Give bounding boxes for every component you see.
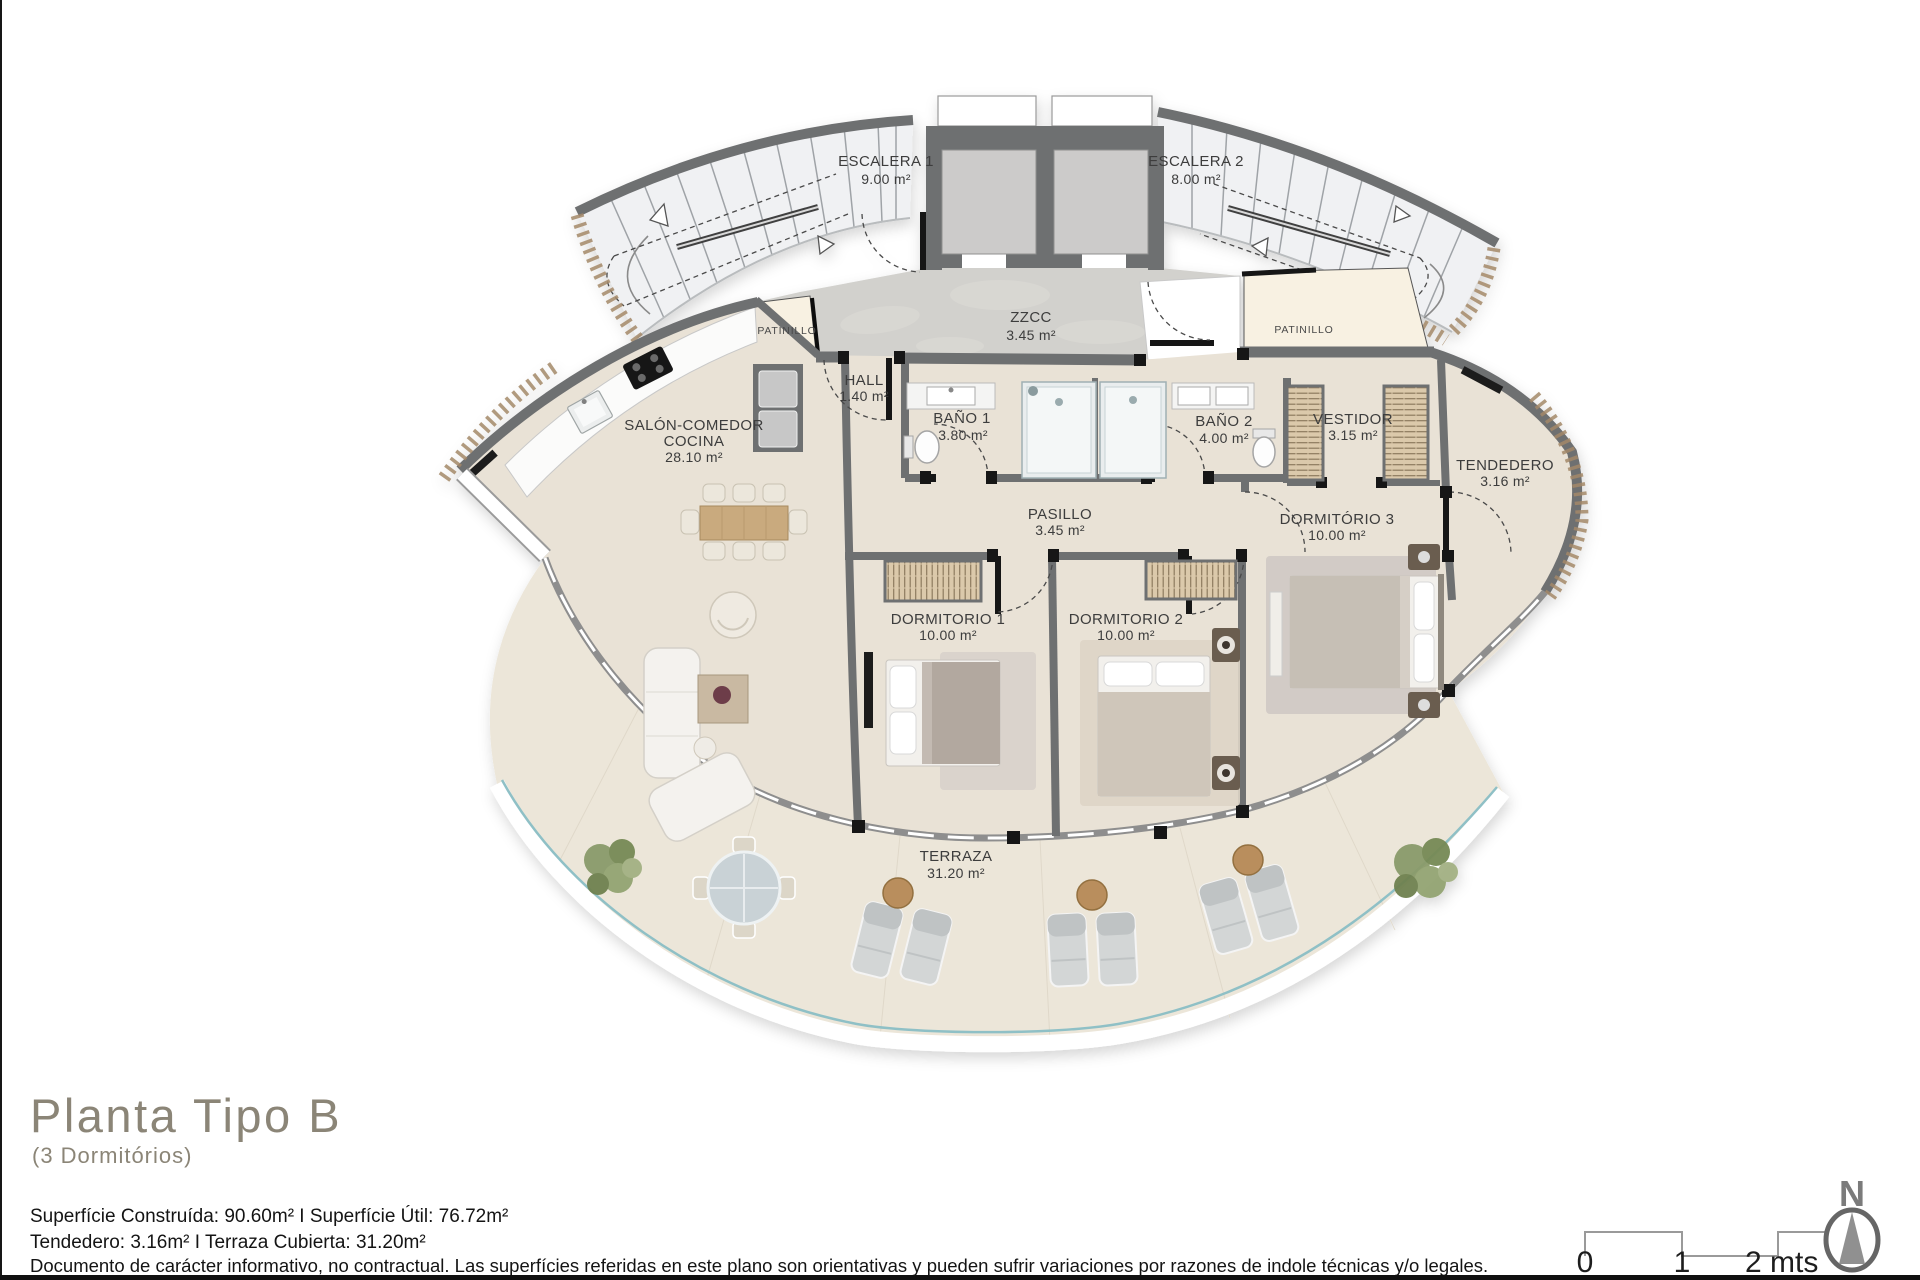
area-bano1: 3.80 m² xyxy=(938,427,988,443)
area-bano2: 4.00 m² xyxy=(1199,430,1249,446)
elevator-cab xyxy=(1054,150,1148,254)
patinillo-right-floor xyxy=(1244,268,1428,352)
disclaimer-text: Documento de carácter informativo, no co… xyxy=(30,1255,1488,1277)
area-hall: 1.40 m² xyxy=(839,388,889,404)
label-escalera1: ESCALERA 1 xyxy=(838,153,934,170)
elevator-core xyxy=(926,96,1164,270)
page-bottom-border xyxy=(0,1275,1920,1280)
area-escalera1: 9.00 m² xyxy=(861,171,911,187)
elevator-door xyxy=(1082,254,1126,268)
label-tendedero: TENDEDERO xyxy=(1456,457,1554,474)
pillow xyxy=(1104,662,1152,686)
label-dorm3: DORMITÓRIO 3 xyxy=(1280,511,1395,528)
area-pasillo: 3.45 m² xyxy=(1035,522,1085,538)
label-salon-1: SALÓN-COMEDOR xyxy=(624,417,763,434)
duvet xyxy=(1098,692,1210,796)
label-dorm2: DORMITORIO 2 xyxy=(1069,611,1184,628)
areas-line-1: Superfície Construída: 90.60m² I Superfí… xyxy=(30,1206,508,1228)
area-tendedero: 3.16 m² xyxy=(1480,473,1530,489)
side-table-icon xyxy=(694,737,716,759)
duvet xyxy=(922,662,1000,764)
north-arrow-icon: N xyxy=(1826,1173,1878,1270)
area-vestidor: 3.15 m² xyxy=(1328,427,1378,443)
dorm2-furniture xyxy=(1080,628,1240,806)
area-dorm2: 10.00 m² xyxy=(1097,627,1155,643)
dorm1-dorm2-wall xyxy=(1052,556,1056,836)
dorm1-wardrobe xyxy=(885,561,981,601)
area-escalera2: 8.00 m² xyxy=(1171,171,1221,187)
pillow xyxy=(890,666,916,708)
door-leaf xyxy=(1443,492,1449,556)
vestidor-wardrobe xyxy=(1384,386,1428,480)
flowers-icon xyxy=(713,686,731,704)
label-zzcc: ZZCC xyxy=(1010,309,1052,326)
side-table-icon xyxy=(1233,845,1263,875)
dorm3-furniture xyxy=(1266,544,1444,718)
kitchen-tall-units xyxy=(753,364,803,452)
label-vestidor: VESTIDOR xyxy=(1313,411,1393,428)
floorplan-page: ESCALERA 1 9.00 m² ESCALERA 2 8.00 m² ZZ… xyxy=(0,0,1920,1280)
area-dorm3: 10.00 m² xyxy=(1308,527,1366,543)
pillow xyxy=(1156,662,1204,686)
duvet xyxy=(1290,576,1410,688)
areas-line-2: Tendedero: 3.16m² I Terraza Cubierta: 31… xyxy=(30,1232,426,1254)
label-bano1: BAÑO 1 xyxy=(933,410,990,427)
dorm2-wardrobe xyxy=(1146,561,1236,599)
side-table-icon xyxy=(1077,880,1107,910)
label-patinillo-right: PATINILLO xyxy=(1274,324,1333,336)
label-patinillo-left: PATINILLO xyxy=(757,325,816,337)
bench xyxy=(1270,592,1282,676)
pillow xyxy=(1414,582,1434,630)
label-terraza: TERRAZA xyxy=(920,848,993,865)
armchair-icon xyxy=(710,592,756,638)
label-salon-2: COCINA xyxy=(664,433,725,450)
page-subtitle: (3 Dormitórios) xyxy=(32,1143,192,1169)
area-zzcc: 3.45 m² xyxy=(1006,327,1056,343)
elevator-cab xyxy=(942,150,1036,254)
area-terraza: 31.20 m² xyxy=(927,865,985,881)
label-bano2: BAÑO 2 xyxy=(1195,413,1252,430)
page-title: Planta Tipo B xyxy=(30,1088,342,1143)
page-left-border xyxy=(0,0,2,1280)
elevator-door xyxy=(962,254,1006,268)
label-hall: HALL xyxy=(844,372,883,389)
label-pasillo: PASILLO xyxy=(1028,506,1092,523)
door-leaf xyxy=(920,212,926,270)
side-table-icon xyxy=(883,878,913,908)
tv-icon xyxy=(864,652,873,728)
plant-right-icon xyxy=(1394,838,1458,898)
pillow xyxy=(1414,634,1434,682)
door-leaf xyxy=(995,556,1001,614)
label-escalera2: ESCALERA 2 xyxy=(1148,153,1244,170)
building: ESCALERA 1 9.00 m² ESCALERA 2 8.00 m² ZZ… xyxy=(444,96,1582,1050)
label-dorm1: DORMITORIO 1 xyxy=(891,611,1006,628)
door-leaf xyxy=(1150,340,1214,346)
pillow xyxy=(890,712,916,754)
area-dorm1: 10.00 m² xyxy=(919,627,977,643)
headboard xyxy=(1438,574,1444,690)
direction-arrow-icon xyxy=(818,236,834,254)
area-salon: 28.10 m² xyxy=(665,449,723,465)
vestidor-wardrobe xyxy=(1287,386,1323,480)
vestibule-floor xyxy=(1140,276,1240,360)
